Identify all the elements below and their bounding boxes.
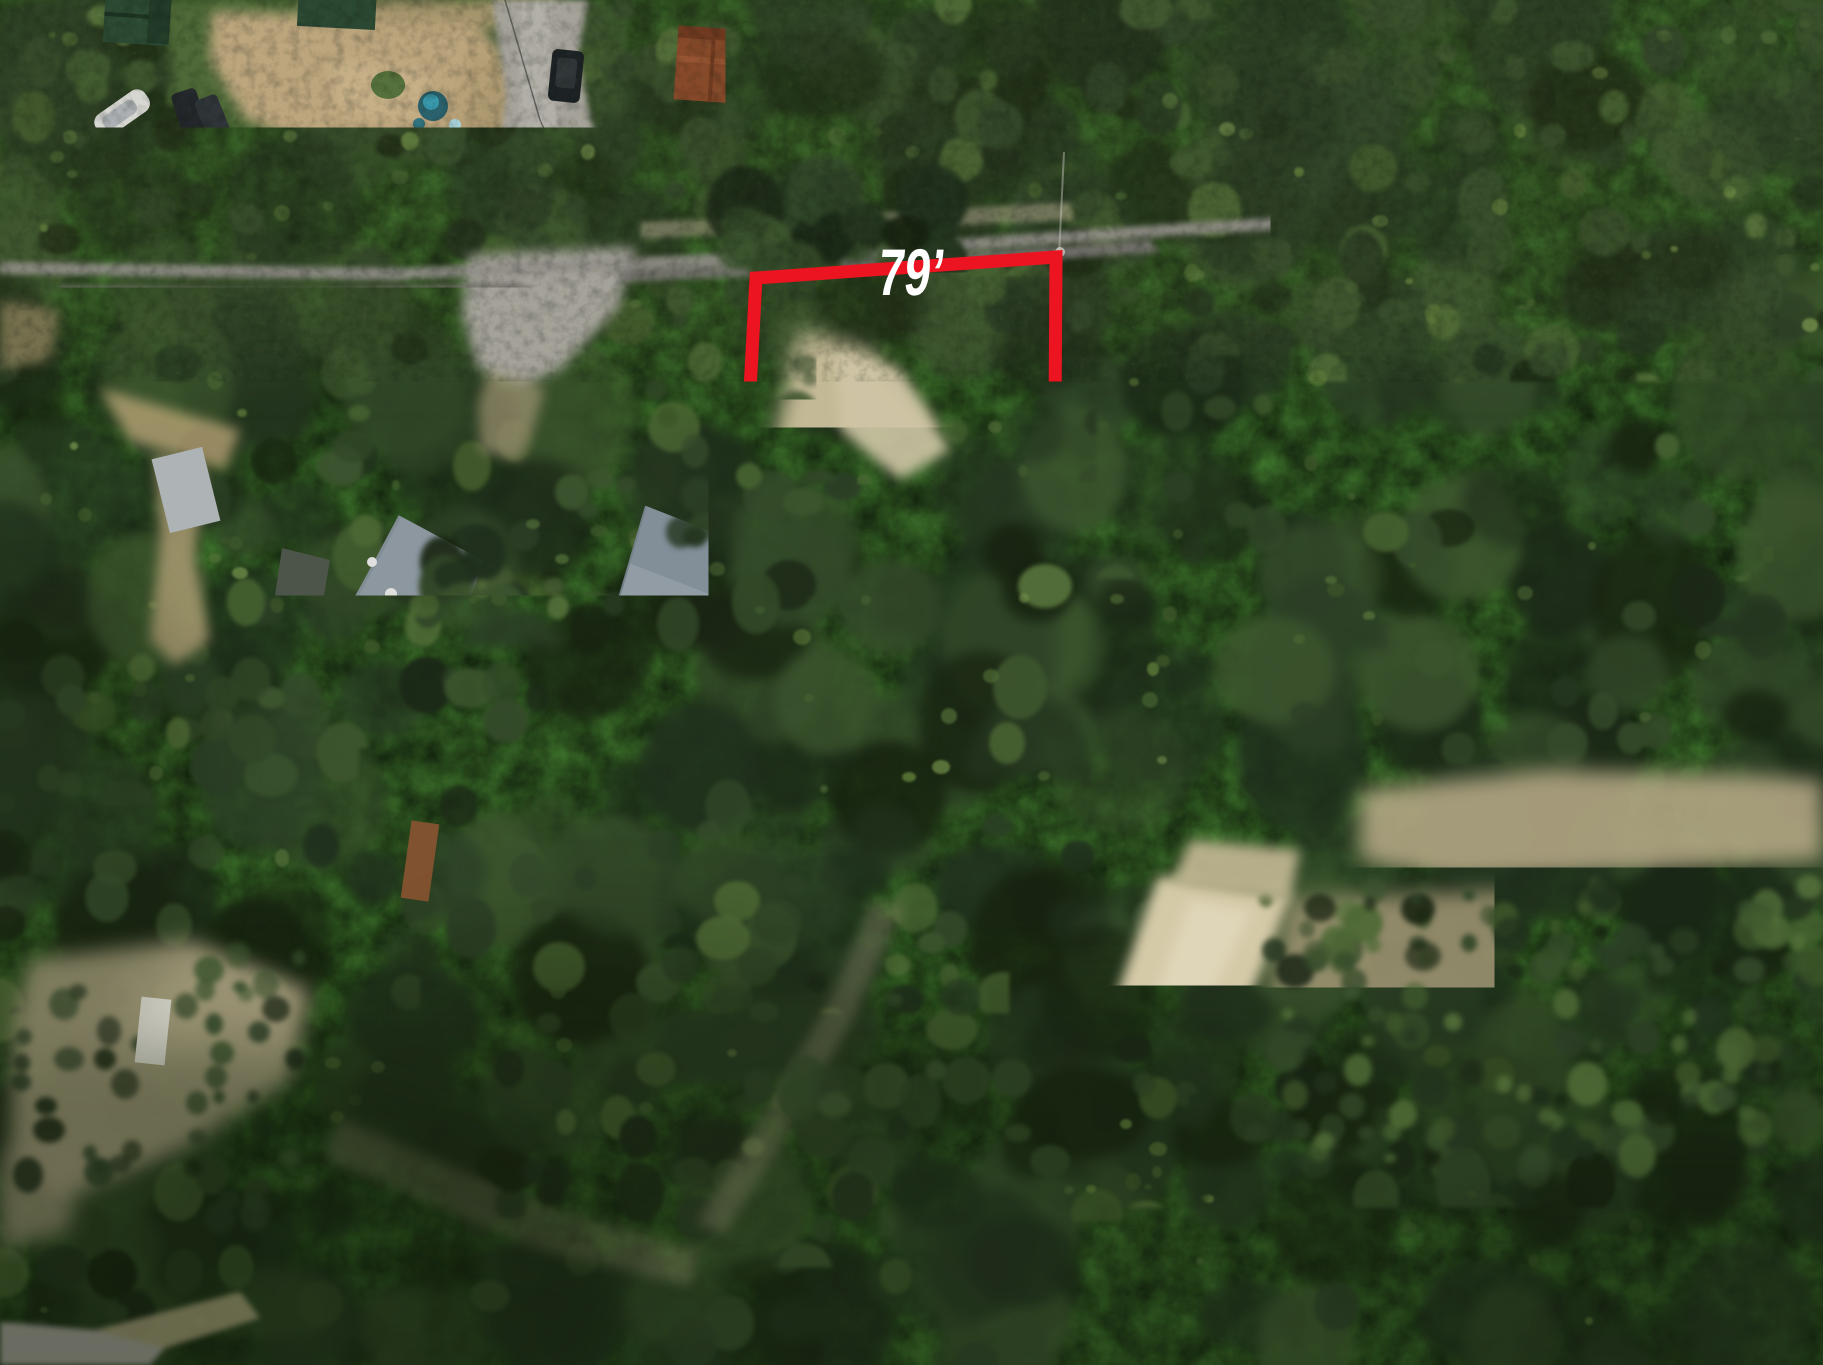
svg-text:155’: 155’ bbox=[698, 469, 798, 542]
svg-text:79’: 79’ bbox=[874, 237, 948, 310]
svg-text:174’: 174’ bbox=[1021, 533, 1121, 606]
svg-text:79’: 79’ bbox=[862, 858, 936, 931]
